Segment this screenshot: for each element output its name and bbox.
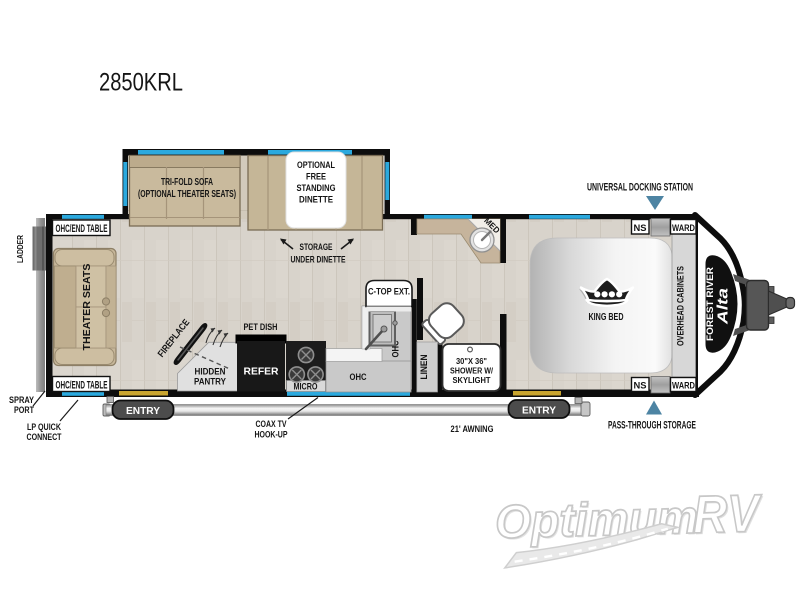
- svg-text:RV: RV: [692, 484, 764, 545]
- svg-text:SHOWER W/: SHOWER W/: [450, 366, 494, 376]
- svg-text:WARD: WARD: [672, 381, 695, 392]
- svg-text:ENTRY: ENTRY: [126, 405, 160, 417]
- svg-text:UNDER DINETTE: UNDER DINETTE: [291, 255, 346, 266]
- svg-text:OHC: OHC: [350, 372, 367, 383]
- svg-text:WARD: WARD: [672, 223, 695, 234]
- svg-text:LINEN: LINEN: [419, 355, 429, 380]
- svg-text:SPRAY: SPRAY: [9, 395, 34, 405]
- svg-text:C-TOP EXT.: C-TOP EXT.: [368, 287, 410, 298]
- svg-text:FOREST RIVER: FOREST RIVER: [705, 266, 715, 341]
- svg-text:KING BED: KING BED: [589, 312, 624, 323]
- svg-text:LADDER: LADDER: [16, 235, 25, 263]
- svg-text:THEATER SEATS: THEATER SEATS: [82, 263, 93, 350]
- svg-text:PET DISH: PET DISH: [244, 322, 278, 333]
- svg-text:21' AWNING: 21' AWNING: [451, 424, 494, 435]
- svg-text:SKYLIGHT: SKYLIGHT: [453, 375, 492, 385]
- svg-text:PORT: PORT: [14, 405, 34, 415]
- svg-text:STORAGE: STORAGE: [300, 242, 333, 253]
- svg-text:OVERHEAD CABINETS: OVERHEAD CABINETS: [676, 266, 687, 346]
- svg-text:MICRO: MICRO: [294, 382, 318, 392]
- svg-text:OHC/END TABLE: OHC/END TABLE: [56, 223, 108, 235]
- svg-text:30"X 36": 30"X 36": [456, 356, 487, 366]
- svg-text:TRI-FOLD SOFA: TRI-FOLD SOFA: [161, 177, 213, 188]
- svg-text:CONNECT: CONNECT: [27, 432, 62, 442]
- svg-text:DINETTE: DINETTE: [299, 195, 333, 206]
- svg-text:OPTIONAL: OPTIONAL: [297, 160, 335, 171]
- svg-text:(OPTIONAL THEATER SEATS): (OPTIONAL THEATER SEATS): [138, 189, 236, 200]
- svg-text:UNIVERSAL DOCKING STATION: UNIVERSAL DOCKING STATION: [587, 182, 693, 194]
- svg-text:PANTRY: PANTRY: [194, 377, 227, 388]
- svg-text:HOOK-UP: HOOK-UP: [255, 430, 288, 441]
- svg-text:Alta: Alta: [715, 288, 732, 325]
- svg-text:2850KRL: 2850KRL: [99, 69, 183, 97]
- svg-text:FREE: FREE: [306, 172, 326, 183]
- svg-text:STANDING: STANDING: [297, 183, 336, 194]
- svg-text:NS: NS: [634, 223, 647, 234]
- svg-text:COAX TV: COAX TV: [256, 419, 287, 430]
- svg-text:OHC/END TABLE: OHC/END TABLE: [56, 380, 108, 392]
- svg-text:LP QUICK: LP QUICK: [27, 422, 61, 432]
- svg-text:ENTRY: ENTRY: [522, 405, 556, 417]
- svg-text:REFER: REFER: [244, 366, 279, 378]
- svg-text:NS: NS: [634, 381, 647, 392]
- svg-text:PASS-THROUGH STORAGE: PASS-THROUGH STORAGE: [608, 420, 696, 432]
